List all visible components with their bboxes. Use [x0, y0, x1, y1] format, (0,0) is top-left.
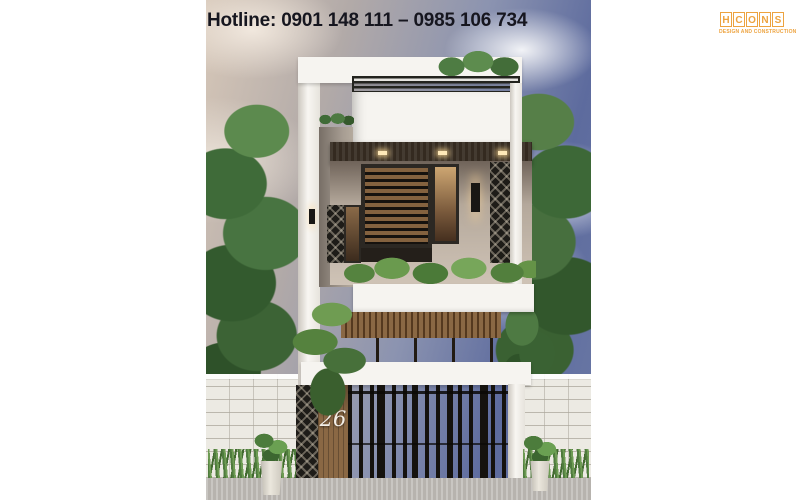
recessed-light	[378, 151, 387, 155]
palm-plant	[290, 292, 374, 417]
upper-parapet-wall	[352, 92, 522, 144]
hcons-logo: H C O N S DESIGN AND CONSTRUCTION	[719, 12, 785, 35]
logo-letter: O	[746, 12, 758, 27]
upper-glass-window	[432, 164, 459, 244]
promo-image-canvas: 26 Hotline: 0901 148 111 – 0985 106 734 …	[0, 0, 800, 500]
wall-sconce-light	[309, 209, 315, 224]
logo-letter: N	[759, 12, 771, 27]
potted-plant	[248, 424, 294, 466]
recessed-light	[438, 151, 447, 155]
balcony-planter-greenery	[344, 253, 536, 287]
decorative-metal-panel	[490, 162, 512, 263]
hotline-text: Hotline: 0901 148 111 – 0985 106 734	[207, 10, 527, 32]
louvered-window	[361, 164, 432, 248]
logo-subtitle: DESIGN AND CONSTRUCTION	[719, 29, 785, 35]
logo-letter: H	[720, 12, 732, 27]
house-render-photo: 26	[206, 0, 591, 500]
wall-sconce-light	[471, 183, 480, 212]
recessed-light	[498, 151, 507, 155]
logo-letter: C	[733, 12, 745, 27]
logo-letter: S	[772, 12, 784, 27]
balcony-planter-box	[353, 284, 534, 312]
hcons-logo-letters: H C O N S	[719, 12, 785, 27]
decorative-metal-panel	[327, 205, 344, 263]
